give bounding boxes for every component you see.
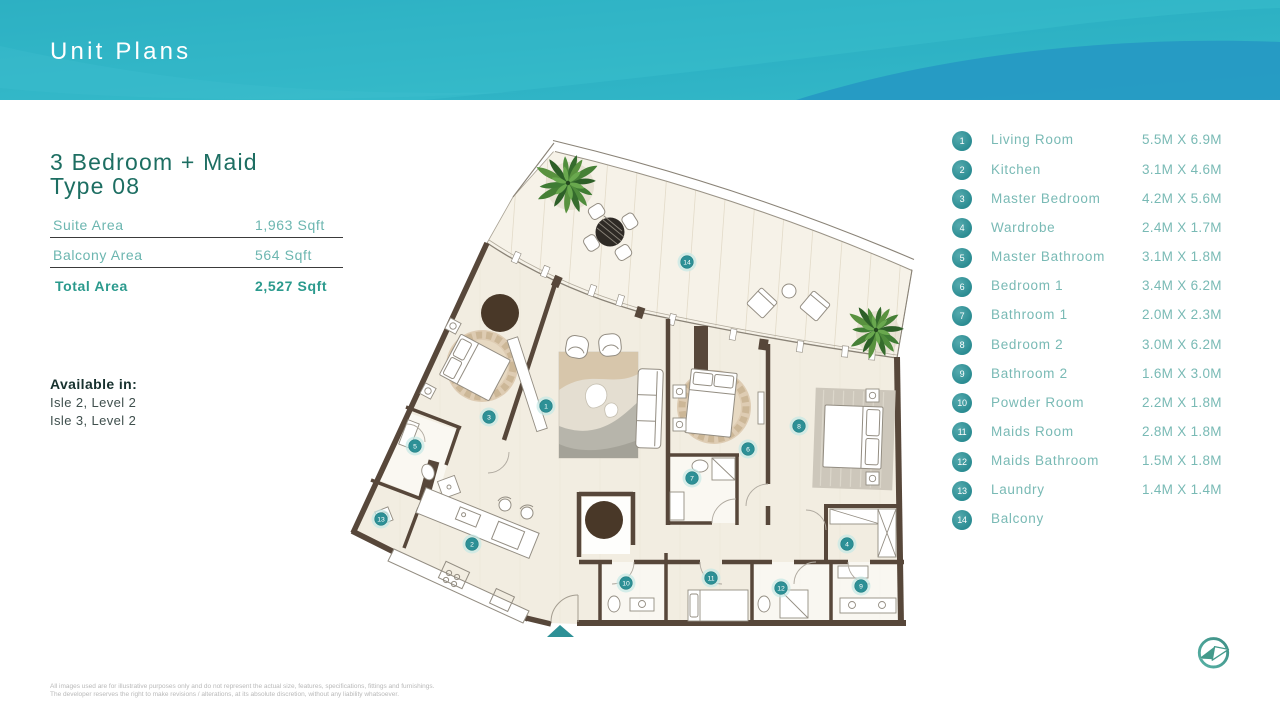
svg-text:9: 9 <box>859 584 863 591</box>
svg-text:10: 10 <box>622 581 630 588</box>
svg-text:7: 7 <box>690 476 694 483</box>
svg-text:6: 6 <box>746 447 750 454</box>
svg-text:2: 2 <box>470 542 474 549</box>
svg-text:1: 1 <box>544 404 548 411</box>
svg-text:13: 13 <box>377 517 385 524</box>
svg-text:14: 14 <box>683 260 691 267</box>
svg-text:12: 12 <box>777 586 785 593</box>
svg-text:4: 4 <box>845 542 849 549</box>
svg-text:3: 3 <box>487 415 491 422</box>
svg-text:11: 11 <box>707 576 714 583</box>
svg-text:5: 5 <box>413 444 417 451</box>
svg-text:8: 8 <box>797 424 801 431</box>
